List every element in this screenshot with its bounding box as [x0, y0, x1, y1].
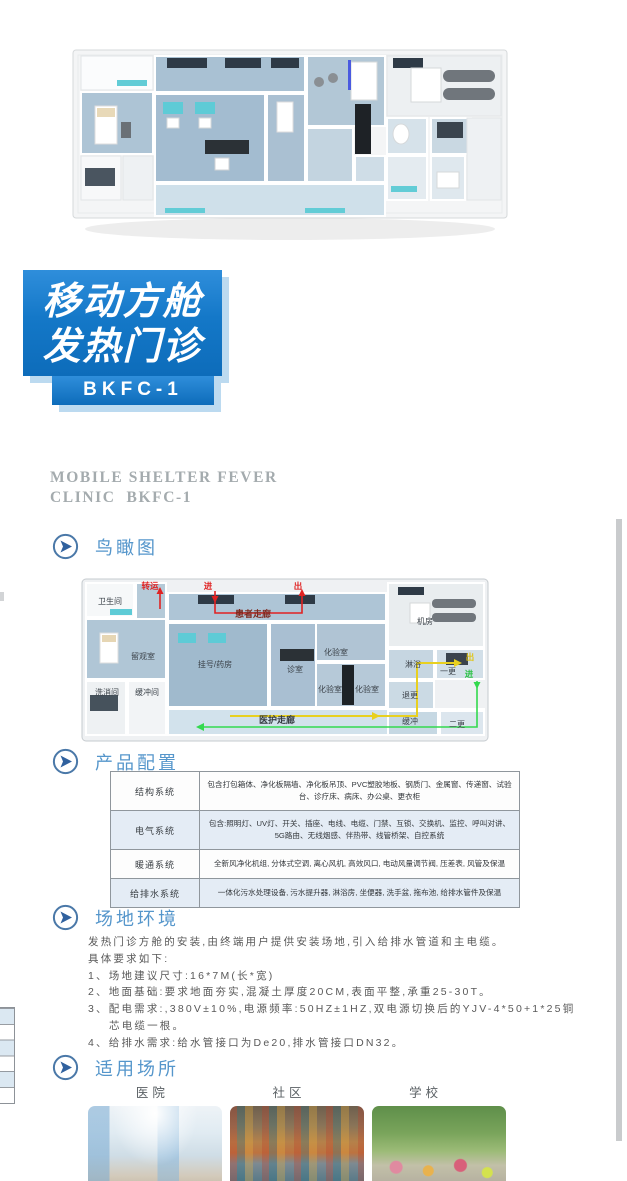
config-row-label: 电气系统 [111, 811, 200, 850]
flow-label-staff-in: 进 [465, 669, 474, 679]
site-requirement-item: 1、场地建议尺寸:16*7M(长*宽) [88, 968, 585, 985]
table-row: 暖通系统 全新风净化机组, 分体式空调, 离心风机, 高效风口, 电动风量调节阀… [111, 850, 520, 879]
room-label-consult: 诊室 [287, 664, 303, 674]
corridor-label-staff: 医护走廊 [259, 714, 295, 725]
config-row-content: 包含打包箱体、净化板隔墙、净化板吊顶、PVC塑胶地板、钢质门、金属窗、传递窗、试… [200, 772, 520, 811]
section-title-site: 场地环境 [95, 905, 179, 931]
community-photo [230, 1106, 364, 1181]
flow-label-patient-out: 出 [294, 581, 303, 591]
room-label-toilet: 卫生间 [98, 596, 122, 606]
room-label-lab-bottom-left: 化验室 [318, 684, 342, 694]
product-logo: 移动方舱 发热门诊 BKFC-1 [23, 270, 253, 405]
config-row-content: 一体化污水处理设备, 污水提升器, 淋浴房, 坐便器, 洗手盆, 拖布池, 给排… [200, 879, 520, 908]
config-row-content: 全新风净化机组, 分体式空调, 离心风机, 高效风口, 电动风量调节阀, 压差表… [200, 850, 520, 879]
flow-label-staff-out: 出 [466, 652, 475, 662]
flow-label-patient-in: 进 [204, 581, 213, 591]
clipped-left-text-fragment [0, 592, 4, 601]
site-requirements-text: 发热门诊方舱的安装,由终端用户提供安装场地,引入给排水管道和主电缆。 具体要求如… [88, 934, 585, 1052]
room-label-lab-bottom-right: 化验室 [355, 684, 379, 694]
table-row: 电气系统 包含:照明灯、UV灯、开关、插座、电线、电缆、门禁、互锁、交换机、监控… [111, 811, 520, 850]
logo-model-code: BKFC-1 [83, 379, 183, 400]
site-requirement-item: 3、配电需求:,380V±10%,电源频率:50HZ±1HZ,双电源切换后的YJ… [88, 1001, 585, 1035]
clipped-left-table-fragment [0, 1007, 15, 1104]
site-requirement-item: 2、地面基础:要求地面夯实,混凝土厚度20CM,表面平整,承重25-30T。 [88, 984, 585, 1001]
flow-label-transfer: 转运 [141, 581, 159, 591]
logo-model-tab: BKFC-1 [52, 376, 214, 405]
section-title-birdseye: 鸟瞰图 [95, 534, 158, 560]
room-label-washing: 洗消间 [95, 687, 119, 697]
birdseye-floorplan-image: 卫生间 转运 进 出 患者走廊 机房 留观室 挂号/药房 诊室 化验室 淋浴 一… [80, 577, 490, 743]
room-label-lab-top: 化验室 [324, 647, 348, 657]
site-requirements-heading: 具体要求如下: [88, 951, 585, 968]
school-photo [372, 1106, 506, 1181]
english-title-line1: MOBILE SHELTER FEVER [50, 469, 278, 486]
english-title: MOBILE SHELTER FEVERCLINIC BKFC-1 [50, 468, 278, 508]
section-header-site: 场地环境 [52, 904, 179, 931]
product-page: 移动方舱 发热门诊 BKFC-1 MOBILE SHELTER FEVERCLI… [0, 0, 627, 1181]
place-label-school: 学校 [361, 1082, 490, 1101]
room-label-retreat: 退更 [402, 691, 418, 700]
corridor-label-patient: 患者走廊 [235, 608, 271, 619]
arrow-circle-icon [52, 533, 79, 560]
table-row: 结构系统 包含打包箱体、净化板隔墙、净化板吊顶、PVC塑胶地板、钢质门、金属窗、… [111, 772, 520, 811]
room-label-shower: 淋浴 [405, 659, 421, 669]
config-row-content: 包含:照明灯、UV灯、开关、插座、电线、电缆、门禁、互锁、交换机、监控、呼叫对讲… [200, 811, 520, 850]
english-title-line2: CLINIC BKFC-1 [50, 489, 192, 506]
logo-line2: 发热门诊 [31, 325, 214, 370]
room-label-buffer-room: 缓冲间 [135, 687, 159, 697]
room-label-registration: 挂号/药房 [198, 659, 232, 669]
arrow-circle-icon [52, 904, 79, 931]
logo-line1: 移动方舱 [31, 280, 214, 325]
room-label-machine: 机房 [417, 616, 433, 626]
room-label-buffer: 缓冲 [402, 716, 418, 726]
place-labels-row: 医院 社区 学校 [88, 1082, 498, 1101]
room-label-change-second: 二更 [449, 720, 465, 729]
section-title-places: 适用场所 [95, 1055, 179, 1081]
config-row-label: 结构系统 [111, 772, 200, 811]
place-label-hospital: 医院 [88, 1082, 217, 1101]
section-header-birdseye: 鸟瞰图 [52, 533, 158, 560]
hospital-photo [88, 1106, 222, 1181]
hero-render-image [55, 22, 525, 247]
room-label-observation: 留观室 [131, 651, 155, 661]
floorplan-svg: 卫生间 转运 进 出 患者走廊 机房 留观室 挂号/药房 诊室 化验室 淋浴 一… [80, 577, 490, 743]
section-header-places: 适用场所 [52, 1054, 179, 1081]
config-row-label: 暖通系统 [111, 850, 200, 879]
config-table: 结构系统 包含打包箱体、净化板隔墙、净化板吊顶、PVC塑胶地板、钢质门、金属窗、… [110, 771, 520, 908]
place-label-community: 社区 [225, 1082, 354, 1101]
site-requirement-item: 4、给排水需求:给水管接口为De20,排水管接口DN32。 [88, 1035, 585, 1052]
arrow-circle-icon [52, 1054, 79, 1081]
arrow-circle-icon [52, 748, 79, 775]
hero-render-svg [55, 22, 525, 247]
place-cards-row [88, 1106, 506, 1181]
logo-main-box: 移动方舱 发热门诊 [23, 270, 222, 376]
site-intro: 发热门诊方舱的安装,由终端用户提供安装场地,引入给排水管道和主电缆。 [88, 934, 585, 951]
page-scrollbar[interactable] [616, 519, 622, 1141]
room-label-change-first: 一更 [440, 667, 456, 676]
